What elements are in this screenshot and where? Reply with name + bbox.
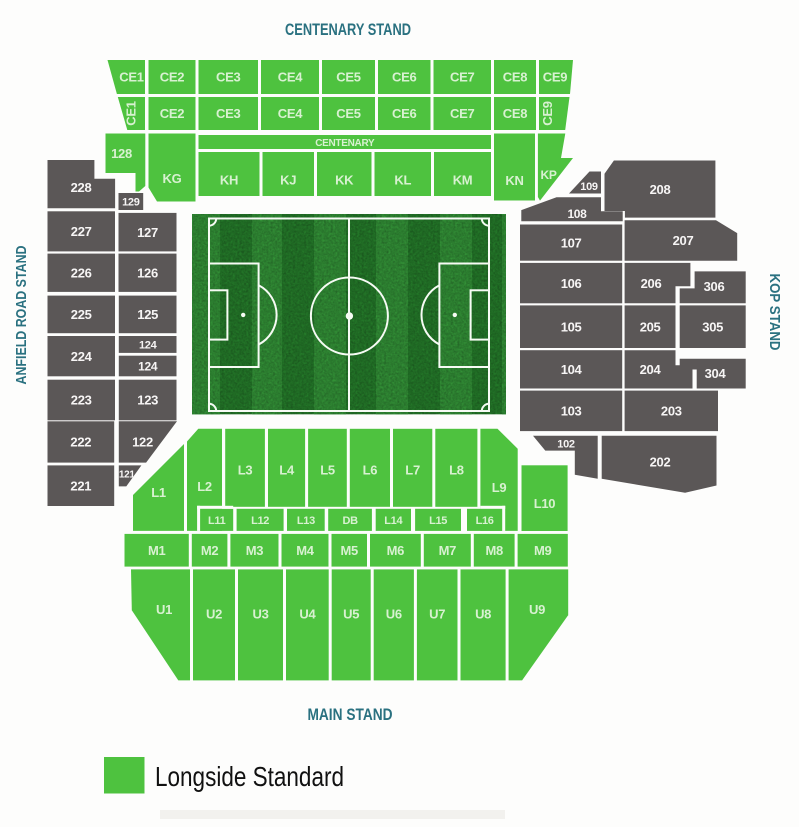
svg-text:L7: L7 — [405, 463, 420, 478]
svg-text:L15: L15 — [429, 515, 447, 527]
svg-text:121: 121 — [119, 470, 136, 481]
svg-text:104: 104 — [561, 362, 583, 377]
svg-text:KG: KG — [163, 171, 182, 186]
svg-text:CE9: CE9 — [540, 101, 555, 125]
svg-text:U9: U9 — [529, 602, 545, 617]
svg-text:203: 203 — [661, 404, 682, 419]
svg-text:CE7: CE7 — [450, 70, 474, 85]
svg-text:227: 227 — [71, 224, 92, 239]
svg-text:103: 103 — [561, 404, 582, 419]
svg-text:L9: L9 — [492, 480, 507, 495]
svg-text:CE1: CE1 — [119, 70, 143, 85]
svg-text:CE7: CE7 — [450, 106, 474, 121]
svg-text:126: 126 — [137, 265, 158, 280]
svg-text:L16: L16 — [476, 515, 494, 527]
svg-text:CE3: CE3 — [216, 106, 240, 121]
svg-text:KN: KN — [505, 173, 523, 188]
svg-text:226: 226 — [71, 265, 92, 280]
svg-text:MAIN STAND: MAIN STAND — [308, 705, 393, 724]
svg-text:L1: L1 — [151, 485, 166, 500]
svg-text:U3: U3 — [252, 607, 268, 622]
svg-text:108: 108 — [567, 207, 587, 221]
svg-text:L8: L8 — [449, 463, 464, 478]
svg-text:125: 125 — [137, 307, 158, 322]
svg-text:L4: L4 — [279, 463, 295, 478]
svg-text:CE6: CE6 — [392, 70, 416, 85]
svg-text:U4: U4 — [299, 607, 316, 622]
svg-text:223: 223 — [71, 393, 92, 408]
svg-text:CE3: CE3 — [216, 70, 240, 85]
svg-text:M5: M5 — [340, 543, 358, 558]
svg-text:U2: U2 — [206, 607, 222, 622]
svg-text:304: 304 — [705, 366, 727, 381]
svg-text:CE2: CE2 — [160, 70, 184, 85]
svg-text:L14: L14 — [384, 515, 403, 527]
svg-text:128: 128 — [111, 146, 132, 161]
svg-text:CE4: CE4 — [278, 70, 303, 85]
svg-text:205: 205 — [640, 319, 661, 334]
svg-text:KJ: KJ — [280, 173, 296, 188]
svg-text:M2: M2 — [201, 543, 219, 558]
svg-text:L10: L10 — [534, 496, 556, 511]
svg-text:CENTENARY: CENTENARY — [315, 138, 375, 149]
svg-text:CE5: CE5 — [336, 70, 360, 85]
svg-text:M3: M3 — [246, 543, 264, 558]
svg-text:123: 123 — [137, 393, 158, 408]
svg-text:204: 204 — [640, 362, 662, 377]
svg-text:L2: L2 — [197, 479, 212, 494]
svg-text:228: 228 — [71, 180, 92, 195]
svg-text:U8: U8 — [475, 607, 491, 622]
svg-text:U6: U6 — [386, 607, 402, 622]
svg-text:107: 107 — [561, 235, 582, 250]
svg-text:CE4: CE4 — [278, 106, 303, 121]
svg-text:225: 225 — [71, 307, 92, 322]
svg-text:CENTENARY STAND: CENTENARY STAND — [285, 20, 411, 39]
svg-text:L13: L13 — [297, 515, 315, 527]
svg-text:CE2: CE2 — [160, 106, 184, 121]
svg-text:KL: KL — [394, 173, 411, 188]
svg-text:106: 106 — [561, 276, 582, 291]
svg-text:KOP STAND: KOP STAND — [766, 274, 783, 351]
svg-text:Longside Standard: Longside Standard — [155, 761, 344, 792]
svg-text:DB: DB — [342, 515, 358, 527]
svg-text:M7: M7 — [439, 543, 457, 558]
svg-text:L5: L5 — [320, 463, 335, 478]
svg-text:222: 222 — [70, 435, 91, 450]
svg-text:M8: M8 — [485, 543, 503, 558]
svg-text:M4: M4 — [296, 543, 315, 558]
svg-text:CE6: CE6 — [392, 106, 416, 121]
svg-text:M9: M9 — [534, 543, 552, 558]
svg-text:105: 105 — [561, 319, 582, 334]
svg-text:207: 207 — [673, 233, 694, 248]
svg-text:109: 109 — [580, 181, 598, 193]
svg-text:221: 221 — [70, 478, 91, 493]
svg-text:M6: M6 — [387, 543, 405, 558]
svg-text:306: 306 — [704, 279, 725, 294]
svg-text:L12: L12 — [251, 515, 269, 527]
svg-text:KM: KM — [453, 173, 473, 188]
svg-text:224: 224 — [71, 349, 93, 364]
svg-text:305: 305 — [702, 319, 723, 334]
svg-text:L11: L11 — [208, 515, 226, 527]
svg-text:M1: M1 — [148, 543, 166, 558]
svg-text:CE9: CE9 — [543, 70, 567, 85]
svg-text:CE8: CE8 — [503, 70, 527, 85]
svg-text:202: 202 — [650, 455, 671, 470]
svg-text:CE1: CE1 — [124, 101, 139, 125]
svg-text:122: 122 — [132, 435, 153, 450]
svg-text:ANFIELD ROAD STAND: ANFIELD ROAD STAND — [13, 245, 30, 384]
svg-text:U1: U1 — [156, 602, 172, 617]
svg-text:KK: KK — [335, 173, 354, 188]
svg-text:L3: L3 — [238, 463, 253, 478]
svg-text:124: 124 — [139, 339, 158, 351]
svg-text:L6: L6 — [363, 463, 378, 478]
svg-text:U7: U7 — [429, 607, 445, 622]
svg-text:CE5: CE5 — [336, 106, 360, 121]
svg-text:208: 208 — [650, 182, 671, 197]
svg-text:KH: KH — [220, 173, 238, 188]
svg-text:102: 102 — [557, 439, 575, 451]
svg-text:CE8: CE8 — [503, 106, 527, 121]
svg-text:U5: U5 — [343, 607, 359, 622]
svg-text:129: 129 — [122, 197, 140, 209]
svg-text:206: 206 — [641, 276, 662, 291]
svg-text:127: 127 — [137, 225, 158, 240]
svg-text:124: 124 — [138, 359, 158, 373]
svg-text:KP: KP — [540, 168, 556, 182]
